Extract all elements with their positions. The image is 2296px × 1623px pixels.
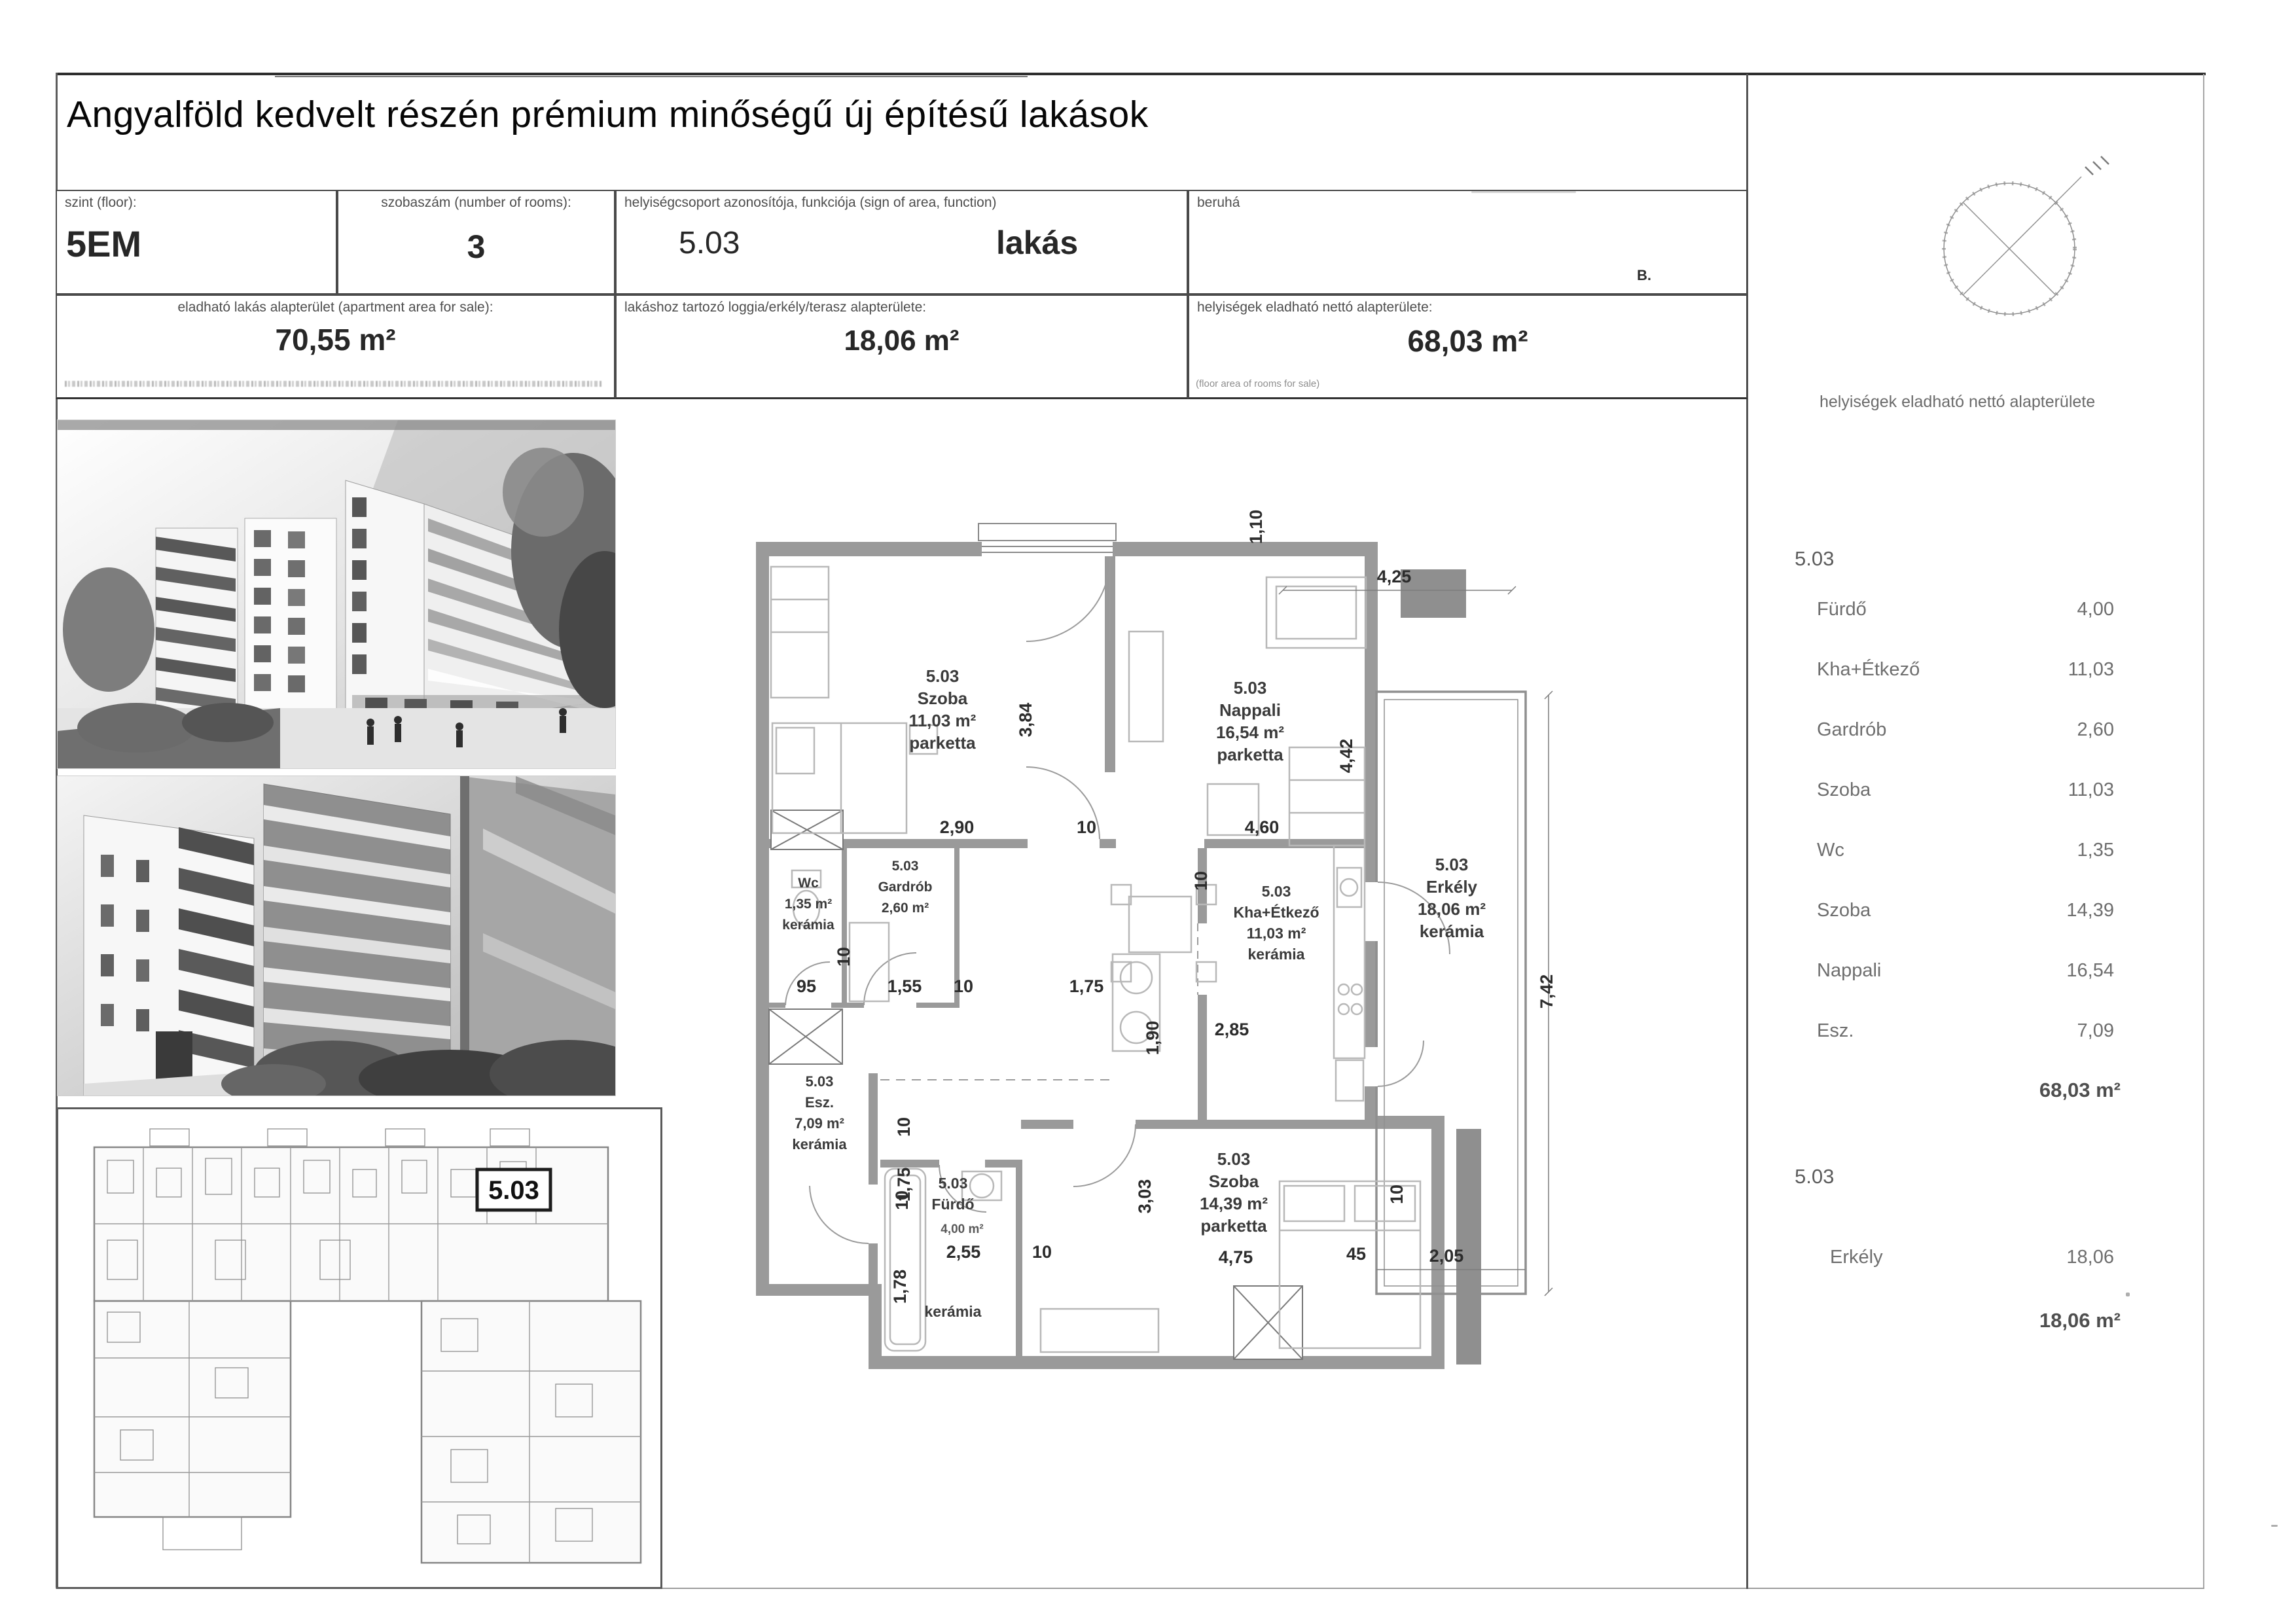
page-border-right <box>2203 74 2204 1589</box>
svg-text:parketta: parketta <box>1217 745 1283 764</box>
room-label-szoba1: 5.03 Szoba 11,03 m² parketta <box>909 666 977 753</box>
svg-text:5.03: 5.03 <box>939 1175 968 1192</box>
svg-text:1,10: 1,10 <box>1246 510 1266 544</box>
unit-function-value: lakás <box>996 224 1078 262</box>
svg-text:5.03: 5.03 <box>1234 678 1267 698</box>
svg-text:Wc: Wc <box>798 876 819 891</box>
balcony-area-value: 18,06 m² <box>617 325 1187 357</box>
cell-apartment-area: eladható lakás alapterület (apartment ar… <box>56 294 615 399</box>
svg-text:10: 10 <box>1387 1185 1407 1204</box>
building-render-photo-2 <box>58 776 615 1096</box>
svg-text:10: 10 <box>954 976 973 996</box>
row-label: Esz. <box>1817 1020 1854 1042</box>
svg-text:5.03: 5.03 <box>892 859 919 874</box>
svg-text:5.03: 5.03 <box>1262 883 1291 900</box>
svg-text:1,78: 1,78 <box>890 1270 910 1304</box>
cell-room-count: szobaszám (number of rooms): 3 <box>337 190 615 294</box>
building-overview-plan: 5.03 <box>56 1107 662 1589</box>
cell-balcony-area: lakáshoz tartozó loggia/erkély/terasz al… <box>615 294 1188 399</box>
page-title: Angyalföld kedvelt részén prémium minősé… <box>67 93 1149 136</box>
room-count-label: szobaszám (number of rooms): <box>338 195 614 211</box>
apartment-floor-plan: 5.03 Szoba 11,03 m² parketta 5.03 Nappal… <box>746 504 1571 1400</box>
svg-text:Nappali: Nappali <box>1219 700 1281 720</box>
plan-furniture <box>771 567 1420 1352</box>
svg-text:10: 10 <box>1077 817 1096 837</box>
row-value: 11,03 <box>1950 659 2114 681</box>
room-label-gardrob: 5.03 Gardrób 2,60 m² <box>878 859 933 916</box>
plan-walls <box>756 542 1481 1369</box>
scan-speck <box>2271 1525 2278 1527</box>
cell-floor: szint (floor): 5EM <box>56 190 337 294</box>
svg-text:5.03: 5.03 <box>806 1073 834 1090</box>
room-label-erkely: 5.03 Erkély 18,06 m² kerámia <box>1418 855 1486 941</box>
render2-image <box>58 776 615 1096</box>
svg-text:1,35 m²: 1,35 m² <box>785 897 832 912</box>
apartment-area-label: eladható lakás alapterület (apartment ar… <box>57 300 614 315</box>
row-value: 11,03 <box>1950 779 2114 801</box>
svg-text:kerámia: kerámia <box>782 918 834 933</box>
svg-text:kerámia: kerámia <box>792 1136 847 1152</box>
scan-speck <box>2126 1293 2130 1296</box>
svg-text:4,75: 4,75 <box>1219 1247 1253 1267</box>
row-value: 18,06 <box>1950 1247 2114 1268</box>
row-label: Szoba <box>1817 900 1871 921</box>
building-render-photo-1 <box>58 420 615 768</box>
row-label: Nappali <box>1817 960 1881 982</box>
svg-text:7,42: 7,42 <box>1537 974 1556 1009</box>
floor-value: 5EM <box>66 223 141 265</box>
room-label-kha: 5.03 Kha+Étkező 11,03 m² kerámia <box>1233 883 1319 963</box>
svg-text:10: 10 <box>1032 1242 1052 1262</box>
svg-text:kerámia: kerámia <box>1420 921 1484 941</box>
svg-text:1,75: 1,75 <box>1069 976 1104 996</box>
scanned-datasheet-page: Angyalföld kedvelt részén prémium minősé… <box>0 0 2296 1623</box>
right-panel-header: helyiségek eladható nettó alapterülete <box>1820 393 2095 412</box>
svg-text:4,25: 4,25 <box>1377 567 1412 586</box>
svg-text:10: 10 <box>894 1117 914 1137</box>
overview-unit-marker: 5.03 <box>477 1169 550 1210</box>
svg-text:5.03: 5.03 <box>926 666 960 686</box>
section-2-id: 5.03 <box>1795 1165 1834 1188</box>
row-value: 1,35 <box>1950 840 2114 861</box>
svg-text:18,06 m²: 18,06 m² <box>1418 899 1486 919</box>
row-label: Szoba <box>1817 779 1871 801</box>
svg-text:5.03: 5.03 <box>1435 855 1469 874</box>
net-area-value: 68,03 m² <box>1189 323 1746 359</box>
svg-text:10: 10 <box>1191 871 1211 891</box>
svg-text:11,03 m²: 11,03 m² <box>909 711 977 730</box>
row-label: Wc <box>1817 840 1844 861</box>
shaft-boxes <box>769 810 1302 1359</box>
svg-text:Szoba: Szoba <box>1209 1171 1259 1191</box>
developer-label: beruhá <box>1197 195 1240 211</box>
illegible-microtext <box>65 381 601 387</box>
scan-speck <box>1471 191 1576 193</box>
svg-text:11,03 m²: 11,03 m² <box>1247 925 1306 942</box>
cell-unit-id: helyiségcsoport azonosítója, funkciója (… <box>615 190 1188 294</box>
cell-net-area: helyiségek eladható nettó alapterülete: … <box>1188 294 1748 399</box>
overview-left-wing <box>94 1301 291 1517</box>
section-1-total: 68,03 m² <box>1950 1079 2121 1102</box>
svg-text:5.03: 5.03 <box>1217 1149 1251 1169</box>
svg-text:10: 10 <box>892 1190 912 1210</box>
svg-text:Gardrób: Gardrób <box>878 880 933 895</box>
row-value: 16,54 <box>1950 960 2114 982</box>
svg-text:Kha+Étkező: Kha+Étkező <box>1233 903 1319 921</box>
svg-text:Fürdő: Fürdő <box>931 1196 974 1213</box>
page-border-top-wobble <box>275 76 1028 77</box>
page-border-top <box>56 73 2206 75</box>
left-facade <box>84 815 254 1096</box>
row-label: Kha+Étkező <box>1817 659 1920 681</box>
svg-text:14,39 m²: 14,39 m² <box>1200 1194 1268 1213</box>
svg-text:2,85: 2,85 <box>1215 1020 1249 1039</box>
row-label: Gardrób <box>1817 719 1886 741</box>
room-label-esz: 5.03 Esz. 7,09 m² kerámia <box>792 1073 847 1152</box>
unit-id-value: 5.03 <box>679 225 740 261</box>
svg-text:3,03: 3,03 <box>1135 1179 1155 1214</box>
render1-image <box>58 420 615 768</box>
room-label-nappali: 5.03 Nappali 16,54 m² parketta <box>1216 678 1284 764</box>
stray-b-mark: B. <box>1637 267 1651 284</box>
overview-right-wing <box>422 1301 641 1563</box>
svg-text:3,84: 3,84 <box>1016 703 1035 738</box>
left-balcony-tower <box>156 518 336 728</box>
svg-text:Erkély: Erkély <box>1426 877 1478 897</box>
floor-label: szint (floor): <box>65 195 137 211</box>
svg-text:2,90: 2,90 <box>940 817 975 837</box>
svg-text:2,55: 2,55 <box>946 1242 981 1262</box>
svg-text:7,09 m²: 7,09 m² <box>795 1115 844 1132</box>
balcony-area-label: lakáshoz tartozó loggia/erkély/terasz al… <box>624 300 926 315</box>
section-2-total: 18,06 m² <box>1950 1309 2121 1332</box>
street-level <box>58 703 615 768</box>
svg-text:2,05: 2,05 <box>1429 1246 1464 1266</box>
right-wall <box>460 776 615 1084</box>
overview-plan-drawing: 5.03 <box>58 1109 660 1587</box>
room-count-value: 3 <box>338 228 614 266</box>
row-value: 14,39 <box>1950 900 2114 921</box>
overview-unit-label: 5.03 <box>488 1176 539 1205</box>
svg-text:4,60: 4,60 <box>1245 817 1280 837</box>
section-1-id: 5.03 <box>1795 547 1834 571</box>
svg-text:10: 10 <box>834 947 853 967</box>
svg-text:Esz.: Esz. <box>805 1094 834 1111</box>
svg-text:1,90: 1,90 <box>1143 1021 1162 1056</box>
svg-text:Szoba: Szoba <box>918 688 968 708</box>
svg-text:4,00 m²: 4,00 m² <box>941 1222 983 1236</box>
room-label-szoba2: 5.03 Szoba 14,39 m² parketta <box>1200 1149 1268 1236</box>
net-area-footnote: (floor area of rooms for sale) <box>1196 378 1319 389</box>
svg-text:2,60 m²: 2,60 m² <box>882 901 929 916</box>
scan-smear-top <box>58 420 615 430</box>
net-area-label: helyiségek eladható nettó alapterülete: <box>1197 300 1433 315</box>
svg-text:16,54 m²: 16,54 m² <box>1216 722 1284 742</box>
room-label-wc: Wc 1,35 m² kerámia <box>782 876 834 933</box>
row-label: Fürdő <box>1817 599 1867 620</box>
unit-id-label: helyiségcsoport azonosítója, funkciója (… <box>624 195 997 211</box>
svg-text:kerámia: kerámia <box>1248 946 1305 963</box>
compass-label-marks <box>2085 156 2109 175</box>
row-value: 2,60 <box>1950 719 2114 741</box>
row-value: 7,09 <box>1950 1020 2114 1042</box>
svg-text:45: 45 <box>1346 1244 1366 1264</box>
apartment-area-value: 70,55 m² <box>57 322 614 357</box>
svg-text:1,55: 1,55 <box>888 976 922 996</box>
compass-icon <box>1918 147 2134 344</box>
row-label: Erkély <box>1830 1247 1883 1268</box>
svg-text:kerámia: kerámia <box>925 1303 982 1320</box>
svg-text:parketta: parketta <box>1200 1216 1267 1236</box>
svg-text:4,42: 4,42 <box>1336 739 1356 774</box>
cell-developer: beruhá B. <box>1188 190 1748 294</box>
svg-text:parketta: parketta <box>909 733 976 753</box>
row-value: 4,00 <box>1950 599 2114 620</box>
svg-text:95: 95 <box>797 976 816 996</box>
